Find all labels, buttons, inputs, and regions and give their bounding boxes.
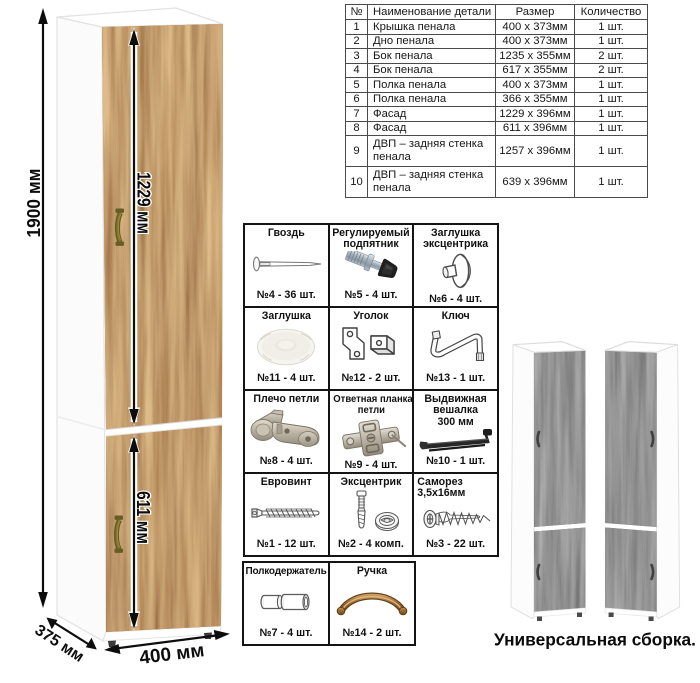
svg-text:611 мм: 611 мм	[133, 491, 154, 544]
svg-text:Универсальная сборка.: Универсальная сборка.	[494, 630, 696, 650]
svg-text:375 мм: 375 мм	[32, 622, 87, 666]
svg-text:1229 мм: 1229 мм	[134, 172, 155, 234]
svg-text:1900 мм: 1900 мм	[23, 169, 44, 238]
